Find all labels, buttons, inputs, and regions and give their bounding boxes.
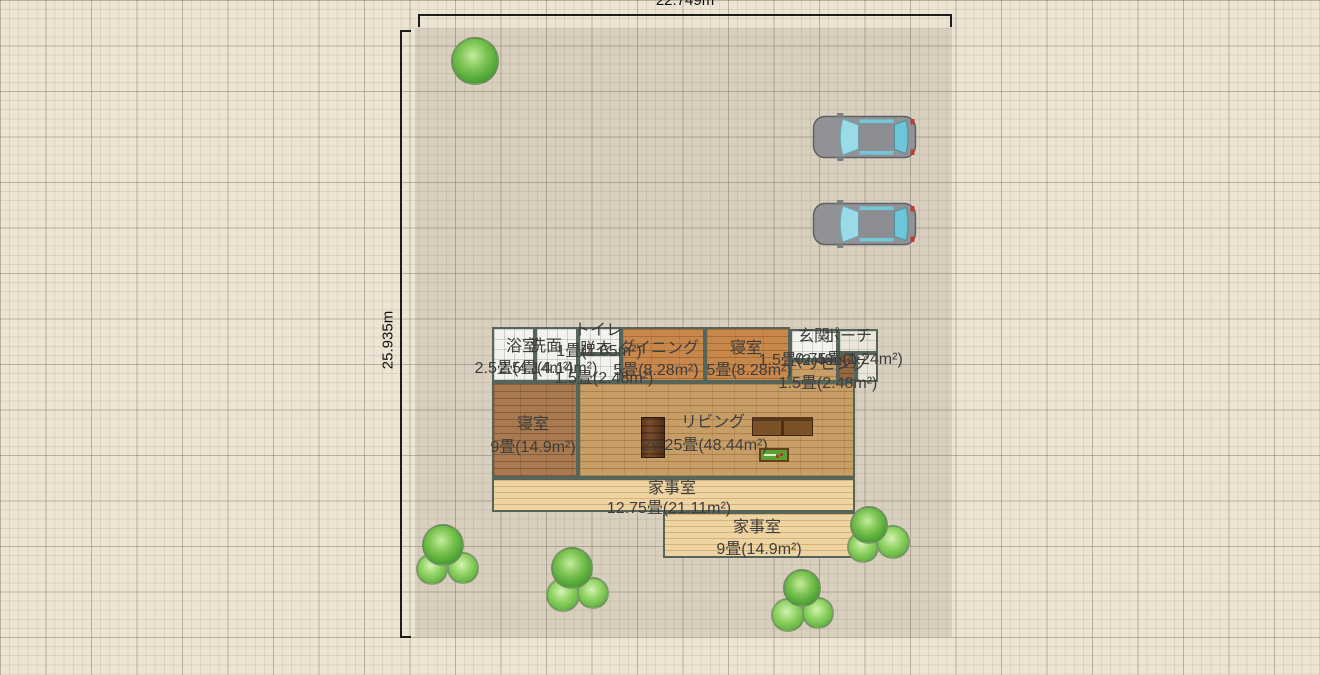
dimension-tick-left-top <box>400 30 411 32</box>
room-label-living: リビング <box>681 415 745 431</box>
room-label-bedroom-top: 寝室 <box>730 341 762 357</box>
dimension-tick-top-right <box>950 14 952 27</box>
room-size-living-small: 1.5畳(2.48m²) <box>779 376 878 392</box>
tree-foliage <box>850 506 888 544</box>
room-size-utility-2: 9畳(14.9m²) <box>716 542 801 558</box>
dimension-line-top <box>418 14 952 16</box>
floorplan-canvas[interactable]: 22.749m 25.935m 浴室 2.5畳(4.14m²) 洗面 2.5畳(… <box>0 0 1320 675</box>
room-size-utility-1: 12.75畳(21.11m²) <box>607 501 731 517</box>
room-label-bedroom-left: 寝室 <box>517 417 549 433</box>
room-size-bedroom-left: 9畳(14.9m²) <box>490 440 575 456</box>
room-label-toilet: トイレ <box>574 323 622 339</box>
dimension-tick-top-left <box>418 14 420 27</box>
sofa-cabinet-furniture[interactable] <box>752 417 813 436</box>
dimension-tick-left-bottom <box>400 636 411 638</box>
tree-foliage <box>422 524 464 566</box>
car-icon[interactable] <box>812 199 917 249</box>
room-label-living-small: リビング <box>804 357 868 373</box>
furniture-detail-dot <box>776 455 779 458</box>
dimension-line-left <box>400 30 402 638</box>
room-label-utility-2: 家事室 <box>733 520 781 536</box>
room-size-dining: 5畳(8.28m²) <box>613 363 698 379</box>
dimension-label-height: 25.935m <box>380 311 397 369</box>
car-icon[interactable] <box>812 112 917 162</box>
tree-foliage <box>551 547 593 589</box>
tree-foliage <box>783 569 821 607</box>
room-size-living: 29.25畳(48.44m²) <box>642 438 767 454</box>
room-label-porch: ポーチ <box>824 329 872 345</box>
dimension-label-width: 22.749m <box>656 0 714 9</box>
room-label-dressing: 脱衣 <box>580 342 612 358</box>
tree-foliage <box>451 37 499 85</box>
room-label-dining: ダイニング <box>619 341 699 357</box>
room-label-utility-1: 家事室 <box>648 481 696 497</box>
furniture-detail-dot <box>780 453 783 456</box>
